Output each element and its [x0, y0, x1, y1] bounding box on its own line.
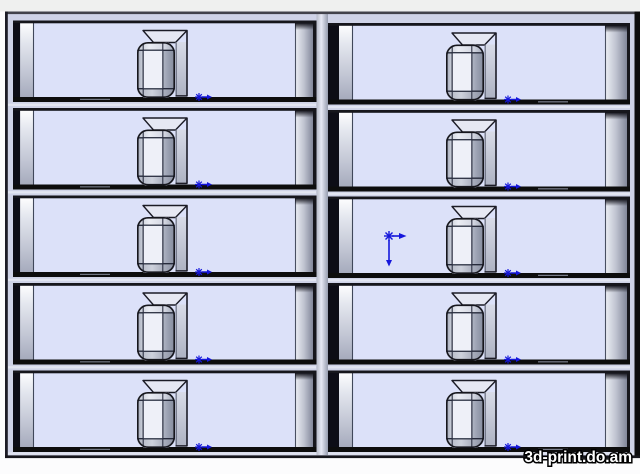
svg-text:3d-print.do.am: 3d-print.do.am [524, 449, 632, 466]
